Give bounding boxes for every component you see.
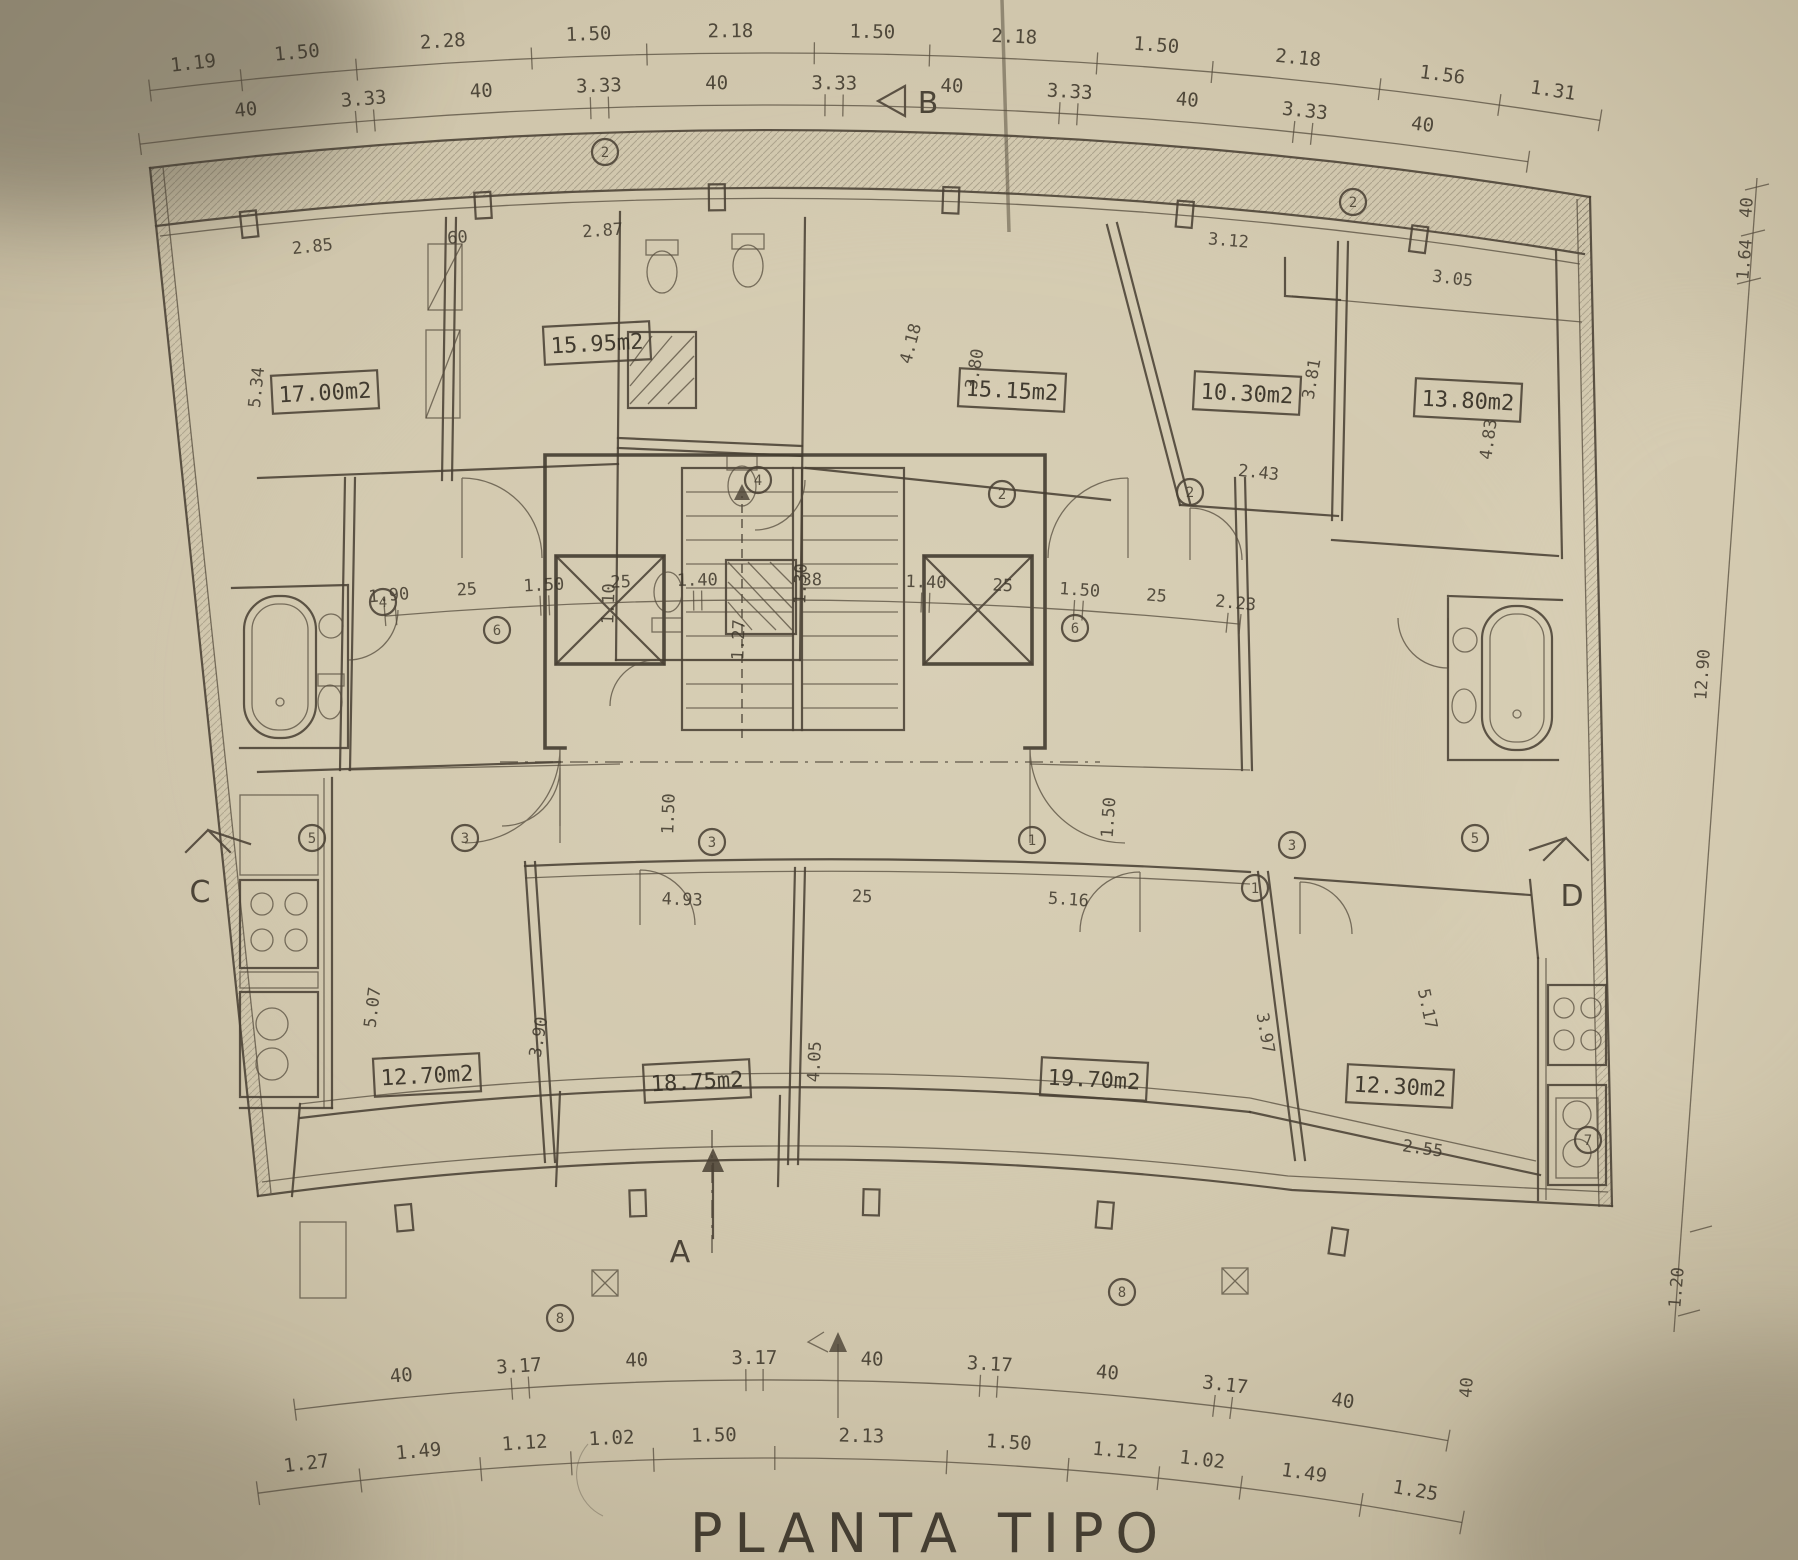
interior-dim-5: 3.12 bbox=[1207, 229, 1250, 252]
dim-mid_core-10: 2.23 bbox=[1214, 592, 1257, 616]
dim-mid_core-6: 1.40 bbox=[905, 572, 947, 593]
reference-bubble: 4 bbox=[754, 473, 762, 489]
dim-bottom_outer-2: 1.12 bbox=[501, 1431, 548, 1456]
interior-dim-2: 2.87 bbox=[582, 220, 624, 243]
dim-mid_core-9: 25 bbox=[1145, 585, 1167, 607]
dim-top_outer-5: 1.50 bbox=[849, 21, 895, 44]
section-d-label: D bbox=[1560, 879, 1583, 914]
dim-top_inner-3: 3.33 bbox=[576, 74, 622, 98]
reference-bubble: 2 bbox=[1349, 195, 1357, 211]
reference-bubble: 5 bbox=[1471, 831, 1479, 847]
dim-top_outer-2: 2.28 bbox=[419, 29, 466, 54]
dim-bottom_inner-6: 40 bbox=[1095, 1361, 1120, 1385]
interior-dim-28: 40 bbox=[1736, 196, 1758, 218]
dim-mid_core-7: 25 bbox=[992, 575, 1013, 596]
reference-bubble: 2 bbox=[1186, 485, 1194, 501]
section-b-label: B bbox=[918, 86, 939, 121]
room-area-label: 19.70m2 bbox=[1047, 1066, 1141, 1096]
dim-bottom_inner-3: 3.17 bbox=[731, 1347, 777, 1369]
reference-bubble: 1 bbox=[1028, 833, 1036, 849]
room-area-label: 12.30m2 bbox=[1353, 1073, 1447, 1103]
interior-dim-26: 1.20 bbox=[1665, 1266, 1688, 1309]
interior-dim-11: 1.30 bbox=[790, 563, 811, 605]
dim-top_outer-8: 2.18 bbox=[1274, 45, 1322, 72]
interior-dim-15: 1.50 bbox=[1098, 797, 1121, 839]
floor-plan-photo: B A C D 1.191.502.281.502.181.502.181.50… bbox=[0, 0, 1798, 1560]
dim-top_inner-7: 3.33 bbox=[1046, 79, 1093, 104]
interior-dim-8: 2.43 bbox=[1237, 461, 1280, 485]
dim-top_outer-1: 1.50 bbox=[273, 40, 321, 66]
dim-bottom_inner-5: 3.17 bbox=[966, 1352, 1013, 1377]
dim-top_inner-2: 40 bbox=[469, 79, 493, 102]
dim-mid_core-8: 1.50 bbox=[1059, 579, 1101, 602]
interior-dim-14: 1.50 bbox=[658, 793, 679, 835]
dim-bottom_inner-4: 40 bbox=[860, 1348, 883, 1371]
dim-bottom_outer-5: 2.13 bbox=[838, 1425, 884, 1448]
dim-bottom_outer-3: 1.02 bbox=[588, 1426, 635, 1450]
dim-bottom_inner-0: 40 bbox=[389, 1364, 414, 1388]
dim-bottom_inner-1: 3.17 bbox=[495, 1354, 542, 1379]
interior-dim-0: 2.85 bbox=[291, 235, 334, 259]
room-area-label: 17.00m2 bbox=[278, 379, 372, 409]
interior-dim-19: 4.05 bbox=[804, 1041, 826, 1083]
reference-bubble: 7 bbox=[1584, 1133, 1592, 1149]
dim-bottom_inner-8: 40 bbox=[1330, 1388, 1356, 1413]
dim-top_inner-4: 40 bbox=[705, 72, 728, 94]
interior-dim-1: 60 bbox=[446, 227, 468, 249]
interior-dim-16: 4.93 bbox=[661, 889, 703, 910]
reference-bubble: 6 bbox=[1071, 621, 1079, 637]
room-area-label: 15.95m2 bbox=[550, 330, 644, 360]
dim-mid_core-1: 25 bbox=[456, 579, 478, 600]
reference-bubble: 3 bbox=[461, 831, 469, 847]
dim-bottom_outer-6: 1.50 bbox=[985, 1430, 1032, 1455]
section-a-label: A bbox=[670, 1235, 691, 1270]
section-c-label: C bbox=[190, 875, 211, 910]
reference-bubble: 5 bbox=[308, 831, 316, 847]
interior-dim-12: 1.10 bbox=[598, 583, 619, 625]
reference-bubble: 2 bbox=[601, 145, 609, 161]
dim-top_outer-6: 2.18 bbox=[991, 25, 1038, 49]
reference-bubble: 8 bbox=[556, 1311, 564, 1327]
interior-dim-18: 5.16 bbox=[1047, 889, 1089, 912]
drawing-title: PLANTA TIPO bbox=[690, 1502, 1170, 1560]
dim-bottom_inner-2: 40 bbox=[625, 1349, 649, 1372]
interior-dim-27: 12.90 bbox=[1691, 648, 1715, 700]
dim-top_inner-1: 3.33 bbox=[340, 86, 387, 112]
interior-dim-25: 40 bbox=[1456, 1376, 1478, 1398]
room-area-label: 12.70m2 bbox=[380, 1062, 474, 1092]
room-area-label: 10.30m2 bbox=[1200, 380, 1294, 410]
dim-top_outer-7: 1.50 bbox=[1133, 33, 1180, 58]
dim-top_outer-4: 2.18 bbox=[707, 20, 753, 42]
dim-top_outer-3: 1.50 bbox=[565, 22, 612, 46]
interior-dim-17: 25 bbox=[852, 887, 873, 908]
reference-bubble: 3 bbox=[1288, 838, 1296, 854]
dim-mid_core-4: 1.40 bbox=[677, 570, 718, 591]
dim-top_inner-0: 40 bbox=[233, 98, 258, 122]
dim-top_inner-6: 40 bbox=[940, 75, 964, 98]
interior-dim-29: 1.64 bbox=[1733, 238, 1756, 281]
reference-bubble: 2 bbox=[998, 487, 1006, 503]
floor-plan-drawing: B A C D 1.191.502.281.502.181.502.181.50… bbox=[0, 0, 1798, 1560]
dim-top_inner-8: 40 bbox=[1175, 88, 1200, 112]
interior-dim-3: 5.34 bbox=[245, 366, 269, 409]
reference-bubble: 3 bbox=[708, 835, 716, 851]
dim-bottom_outer-4: 1.50 bbox=[691, 1424, 737, 1447]
room-area-label: 13.80m2 bbox=[1421, 387, 1515, 417]
dim-top_inner-5: 3.33 bbox=[811, 72, 857, 95]
dim-top_inner-10: 40 bbox=[1410, 112, 1436, 137]
dim-mid_core-0: 1.90 bbox=[368, 584, 410, 607]
reference-bubble: 8 bbox=[1118, 1285, 1126, 1301]
reference-bubble: 4 bbox=[379, 595, 387, 611]
dim-bottom_outer-7: 1.12 bbox=[1091, 1438, 1139, 1464]
dim-bottom_outer-1: 1.49 bbox=[395, 1438, 443, 1464]
dim-mid_core-2: 1.50 bbox=[523, 575, 565, 597]
reference-bubble: 6 bbox=[493, 623, 501, 639]
interior-dim-13: 1.27 bbox=[728, 619, 749, 661]
reference-bubble: 1 bbox=[1251, 881, 1259, 897]
room-area-label: 18.75m2 bbox=[650, 1068, 744, 1098]
